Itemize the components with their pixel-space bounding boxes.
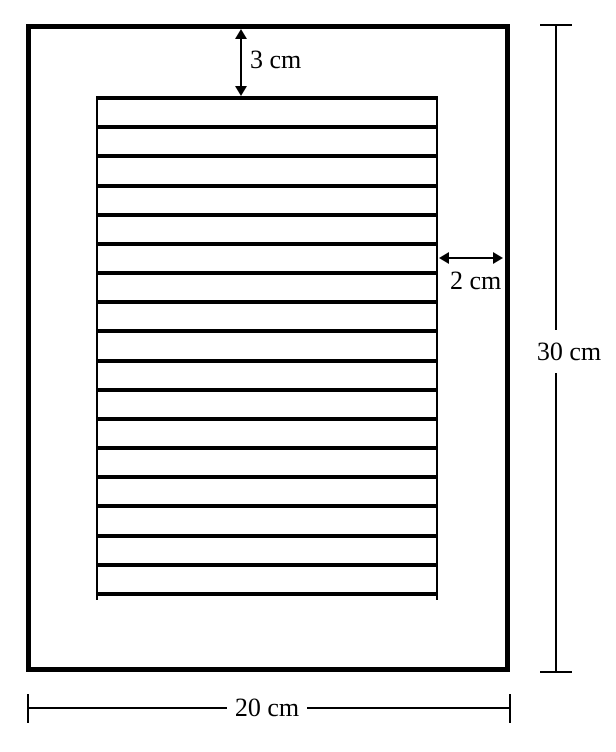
ruled-line bbox=[96, 446, 438, 450]
right-margin-label: 2 cm bbox=[450, 268, 501, 294]
ruled-line bbox=[96, 563, 438, 567]
page-width-label: 20 cm bbox=[234, 695, 300, 721]
page-height-label: 30 cm bbox=[536, 339, 602, 365]
ruled-line bbox=[96, 125, 438, 129]
arrow-right-head bbox=[493, 252, 503, 264]
height-dimension-upper-segment bbox=[555, 25, 557, 330]
arrow-down-head bbox=[235, 86, 247, 96]
ruled-line bbox=[96, 300, 438, 304]
ruled-line bbox=[96, 475, 438, 479]
arrow-shaft bbox=[445, 257, 497, 259]
ruled-line bbox=[96, 242, 438, 246]
width-dimension-right-tick bbox=[509, 694, 511, 723]
ruled-line bbox=[96, 96, 438, 100]
ruled-line bbox=[96, 388, 438, 392]
ruled-line bbox=[96, 154, 438, 158]
width-dimension-right-segment bbox=[307, 707, 510, 709]
ruled-line bbox=[96, 329, 438, 333]
ruled-line bbox=[96, 184, 438, 188]
top-margin-label: 3 cm bbox=[250, 47, 301, 73]
diagram-canvas: 3 cm 2 cm 30 cm 20 cm bbox=[0, 0, 616, 752]
right-margin-arrow bbox=[439, 252, 503, 264]
height-dimension-lower-segment bbox=[555, 373, 557, 672]
ruled-line bbox=[96, 359, 438, 363]
ruled-line bbox=[96, 592, 438, 596]
width-dimension-left-segment bbox=[28, 707, 227, 709]
ruled-line bbox=[96, 534, 438, 538]
arrow-shaft bbox=[240, 35, 242, 90]
ruled-lines-area bbox=[96, 96, 438, 600]
ruled-line bbox=[96, 504, 438, 508]
ruled-line bbox=[96, 213, 438, 217]
top-margin-arrow bbox=[235, 29, 247, 96]
ruled-line bbox=[96, 417, 438, 421]
ruled-line bbox=[96, 271, 438, 275]
height-dimension-bottom-cap bbox=[540, 671, 572, 673]
